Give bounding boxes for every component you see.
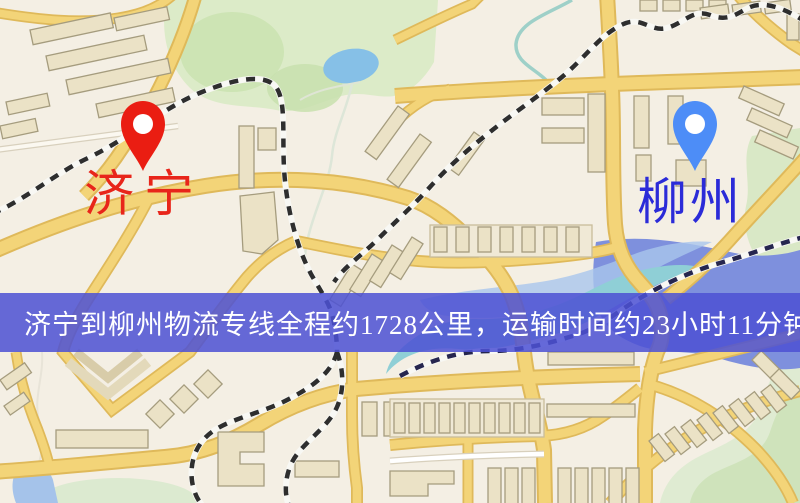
origin-pin-shape bbox=[121, 101, 165, 171]
origin-city-label: 济宁 bbox=[84, 169, 204, 219]
route-info-banner: 济宁到柳州物流专线全程约1728公里，运输时间约23小时11分钟. bbox=[0, 293, 800, 352]
destination-pin-shape bbox=[673, 101, 717, 171]
destination-pin-marker[interactable] bbox=[667, 97, 723, 175]
route-info-text: 济宁到柳州物流专线全程约1728公里，运输时间约23小时11分钟. bbox=[0, 303, 800, 342]
destination-pin-hole bbox=[685, 114, 705, 134]
origin-pin-hole bbox=[133, 114, 153, 134]
map-screenshot: 济宁到柳州物流专线全程约1728公里，运输时间约23小时11分钟. 济宁 柳州 bbox=[0, 0, 800, 503]
destination-city-label: 柳州 bbox=[637, 177, 743, 227]
map-canvas bbox=[0, 0, 800, 503]
origin-pin-marker[interactable] bbox=[115, 97, 171, 175]
